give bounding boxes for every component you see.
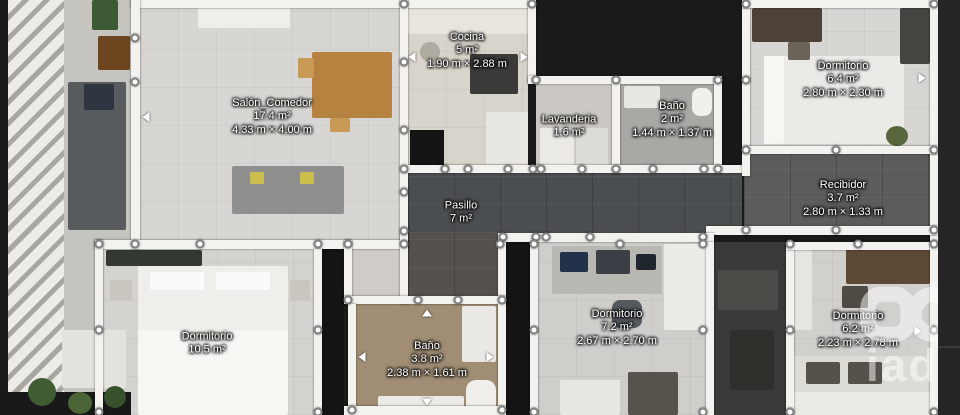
door-arrow-icon xyxy=(919,73,926,83)
room-area: 10.5 m² xyxy=(182,344,233,357)
door-arrow-icon xyxy=(359,352,366,362)
plant-1 xyxy=(28,378,56,406)
wall-node-handle[interactable] xyxy=(454,296,463,305)
room-name: Dormitorio xyxy=(803,60,883,73)
utility-item-1 xyxy=(718,270,778,310)
wall-node-handle[interactable] xyxy=(400,126,409,135)
wall-node-handle[interactable] xyxy=(616,240,625,249)
shaft-cocina xyxy=(410,130,444,166)
nightstand-r xyxy=(290,280,310,300)
room-label-pasillo: Pasillo 7 m² xyxy=(445,200,477,227)
kitchen-appliance xyxy=(486,112,528,164)
room-dims: 4.33 m × 4.00 m xyxy=(232,124,312,137)
desk-bm-item-2 xyxy=(596,250,630,274)
bed-bl-pillow-1 xyxy=(150,272,204,290)
wall-node-handle[interactable] xyxy=(699,408,708,415)
wall xyxy=(742,0,938,8)
wall-node-handle[interactable] xyxy=(786,326,795,335)
terrace-table xyxy=(98,36,130,70)
wall-node-handle[interactable] xyxy=(700,165,709,174)
wall-node-handle[interactable] xyxy=(786,408,795,415)
wall-node-handle[interactable] xyxy=(714,76,723,85)
utility-item-2 xyxy=(730,330,774,390)
wall-node-handle[interactable] xyxy=(832,226,841,235)
wall xyxy=(930,0,938,242)
wall xyxy=(528,76,722,84)
wall-node-handle[interactable] xyxy=(400,58,409,67)
room-name: Pasillo xyxy=(445,200,477,213)
desk-bm-item-1 xyxy=(560,252,588,272)
nightstand-l xyxy=(110,280,132,300)
wall xyxy=(714,76,722,173)
terrace-chairs xyxy=(62,330,126,388)
wall xyxy=(131,0,536,8)
door-arrow-icon xyxy=(521,52,528,62)
wall-node-handle[interactable] xyxy=(400,227,409,236)
room-name: Dormitorio xyxy=(577,308,657,321)
vestibule-floor xyxy=(408,233,498,296)
wall-node-handle[interactable] xyxy=(414,296,423,305)
wall-node-handle[interactable] xyxy=(530,408,539,415)
wall-node-handle[interactable] xyxy=(95,326,104,335)
wall-node-handle[interactable] xyxy=(400,188,409,197)
wall-node-handle[interactable] xyxy=(131,78,140,87)
room-area: 3.7 m² xyxy=(803,192,883,205)
wall-node-handle[interactable] xyxy=(95,408,104,415)
wall-node-handle[interactable] xyxy=(131,240,140,249)
plant-tr xyxy=(886,126,908,146)
wall-node-handle[interactable] xyxy=(649,165,658,174)
void-above-lavanderia xyxy=(536,0,742,80)
room-label-bano-bottom: Baño 3.8 m² 2.38 m × 1.61 m xyxy=(387,340,467,380)
floorplan: Salón_Comedor 17.4 m² 4.33 m × 4.00 m Co… xyxy=(0,0,960,415)
dining-table xyxy=(312,52,392,118)
wall xyxy=(344,406,506,415)
wall-node-handle[interactable] xyxy=(348,406,357,415)
door-arrow-icon xyxy=(487,352,494,362)
wardrobe-br xyxy=(794,250,812,330)
room-dims: 1.44 m × 1.37 m xyxy=(632,127,712,140)
wall-node-handle[interactable] xyxy=(400,0,409,9)
wall-node-handle[interactable] xyxy=(854,240,863,249)
shaft-left xyxy=(322,249,344,415)
room-name: Recibidor xyxy=(803,179,883,192)
sofa-pillow-2 xyxy=(300,172,314,184)
plant-3 xyxy=(104,386,126,408)
room-area: 3.8 m² xyxy=(387,353,467,366)
room-area: 6.4 m² xyxy=(803,73,883,86)
wall-node-handle[interactable] xyxy=(95,240,104,249)
room-area: 1.6 m² xyxy=(542,127,596,140)
room-label-salon-comedor: Salón_Comedor 17.4 m² 4.33 m × 4.00 m xyxy=(232,97,312,137)
wall-node-handle[interactable] xyxy=(699,240,708,249)
wall-node-handle[interactable] xyxy=(786,240,795,249)
room-label-dormitorio-bm: Dormitorio 7.2 m² 2.67 m × 2.70 m xyxy=(577,308,657,348)
wall xyxy=(408,165,742,173)
room-label-dormitorio-tr: Dormitorio 6.4 m² 2.80 m × 2.30 m xyxy=(803,60,883,100)
door-arrow-icon xyxy=(143,112,150,122)
right-panel xyxy=(938,0,960,415)
bed-br-pillow-1 xyxy=(806,362,840,384)
room-area: 2 m² xyxy=(632,113,712,126)
wall-node-handle[interactable] xyxy=(742,146,751,155)
wall-node-handle[interactable] xyxy=(742,0,751,9)
wall-node-handle[interactable] xyxy=(400,240,409,249)
wall-node-handle[interactable] xyxy=(498,296,507,305)
room-area: 17.4 m² xyxy=(232,110,312,123)
wall-node-handle[interactable] xyxy=(586,233,595,242)
wall xyxy=(348,304,356,415)
door-arrow-icon xyxy=(409,52,416,62)
room-dims: 2.67 m × 2.70 m xyxy=(577,335,657,348)
wall-node-handle[interactable] xyxy=(131,34,140,43)
wall-node-handle[interactable] xyxy=(344,240,353,249)
rug-bl xyxy=(106,250,202,266)
wall xyxy=(344,240,352,304)
wall-node-handle[interactable] xyxy=(344,296,353,305)
wardrobe-tr xyxy=(900,8,930,64)
wall-node-handle[interactable] xyxy=(441,165,450,174)
dining-chair-2 xyxy=(330,118,350,132)
room-area: 5 m² xyxy=(427,44,507,57)
room-name: Lavanderia xyxy=(542,114,596,127)
wall-node-handle[interactable] xyxy=(537,165,546,174)
room-name: Baño xyxy=(632,100,712,113)
plant-2 xyxy=(68,392,92,414)
wall xyxy=(344,296,506,304)
shaft-right xyxy=(506,242,530,415)
room-area: 7 m² xyxy=(445,213,477,226)
wall-node-handle[interactable] xyxy=(578,165,587,174)
room-label-dormitorio-bl: Dormitorio 10.5 m² xyxy=(182,331,233,358)
door-arrow-icon xyxy=(422,399,432,406)
wall-node-handle[interactable] xyxy=(699,326,708,335)
wall-node-handle[interactable] xyxy=(498,406,507,415)
wall-node-handle[interactable] xyxy=(400,165,409,174)
wall xyxy=(528,0,536,84)
wall-node-handle[interactable] xyxy=(530,326,539,335)
chair-tr xyxy=(788,42,810,60)
terrace-awning xyxy=(8,0,64,392)
wall-node-handle[interactable] xyxy=(742,226,751,235)
wall-node-handle[interactable] xyxy=(314,408,323,415)
terrace-plant xyxy=(92,0,118,30)
room-dims: 2.80 m × 1.33 m xyxy=(803,206,883,219)
bed-tr-pillows xyxy=(764,56,784,144)
dining-chair-1 xyxy=(298,58,314,78)
wall xyxy=(612,84,620,173)
wall-node-handle[interactable] xyxy=(314,240,323,249)
room-dims: 1.90 m × 2.88 m xyxy=(427,58,507,71)
sofa-pillow-1 xyxy=(250,172,264,184)
wall xyxy=(95,240,408,249)
room-label-bano-top: Baño 2 m² 1.44 m × 1.37 m xyxy=(632,100,712,140)
wall-node-handle[interactable] xyxy=(464,165,473,174)
wall-node-handle[interactable] xyxy=(714,165,723,174)
wall-node-handle[interactable] xyxy=(314,326,323,335)
sofa xyxy=(232,166,344,214)
room-label-lavanderia: Lavanderia 1.6 m² xyxy=(542,114,596,141)
room-label-recibidor: Recibidor 3.7 m² 2.80 m × 1.33 m xyxy=(803,179,883,219)
dresser-bm xyxy=(560,380,620,415)
wall xyxy=(742,154,750,176)
wall-node-handle[interactable] xyxy=(530,240,539,249)
room-name: Dormitorio xyxy=(182,331,233,344)
room-name: Cocina xyxy=(427,31,507,44)
room-label-cocina: Cocina 5 m² 1.90 m × 2.88 m xyxy=(427,31,507,71)
wall xyxy=(400,0,408,249)
wall-node-handle[interactable] xyxy=(504,165,513,174)
room-name: Baño xyxy=(387,340,467,353)
door-arrow-icon xyxy=(422,310,432,317)
box-bm xyxy=(628,372,678,415)
desk-bm-item-3 xyxy=(636,254,656,270)
wall-node-handle[interactable] xyxy=(196,240,205,249)
wall-node-handle[interactable] xyxy=(532,76,541,85)
wall-node-handle[interactable] xyxy=(528,0,537,9)
bed-br-duvet xyxy=(794,392,930,415)
desk-br xyxy=(846,244,930,284)
bed-bl-pillow-2 xyxy=(216,272,270,290)
wall-node-handle[interactable] xyxy=(742,76,751,85)
desk-tr xyxy=(752,8,822,42)
sideboard xyxy=(198,8,290,28)
wall-node-handle[interactable] xyxy=(496,240,505,249)
terrace-cushion xyxy=(84,84,114,110)
room-dims: 2.80 m × 2.30 m xyxy=(803,87,883,100)
wall-node-handle[interactable] xyxy=(832,146,841,155)
wall xyxy=(498,304,506,415)
wardrobe-bm xyxy=(664,244,706,330)
room-dims: 2.38 m × 1.61 m xyxy=(387,367,467,380)
right-panel-seam xyxy=(938,346,960,348)
wall-node-handle[interactable] xyxy=(612,76,621,85)
room-name: Salón_Comedor xyxy=(232,97,312,110)
wall-node-handle[interactable] xyxy=(542,233,551,242)
room-area: 7.2 m² xyxy=(577,321,657,334)
wall-node-handle[interactable] xyxy=(612,165,621,174)
